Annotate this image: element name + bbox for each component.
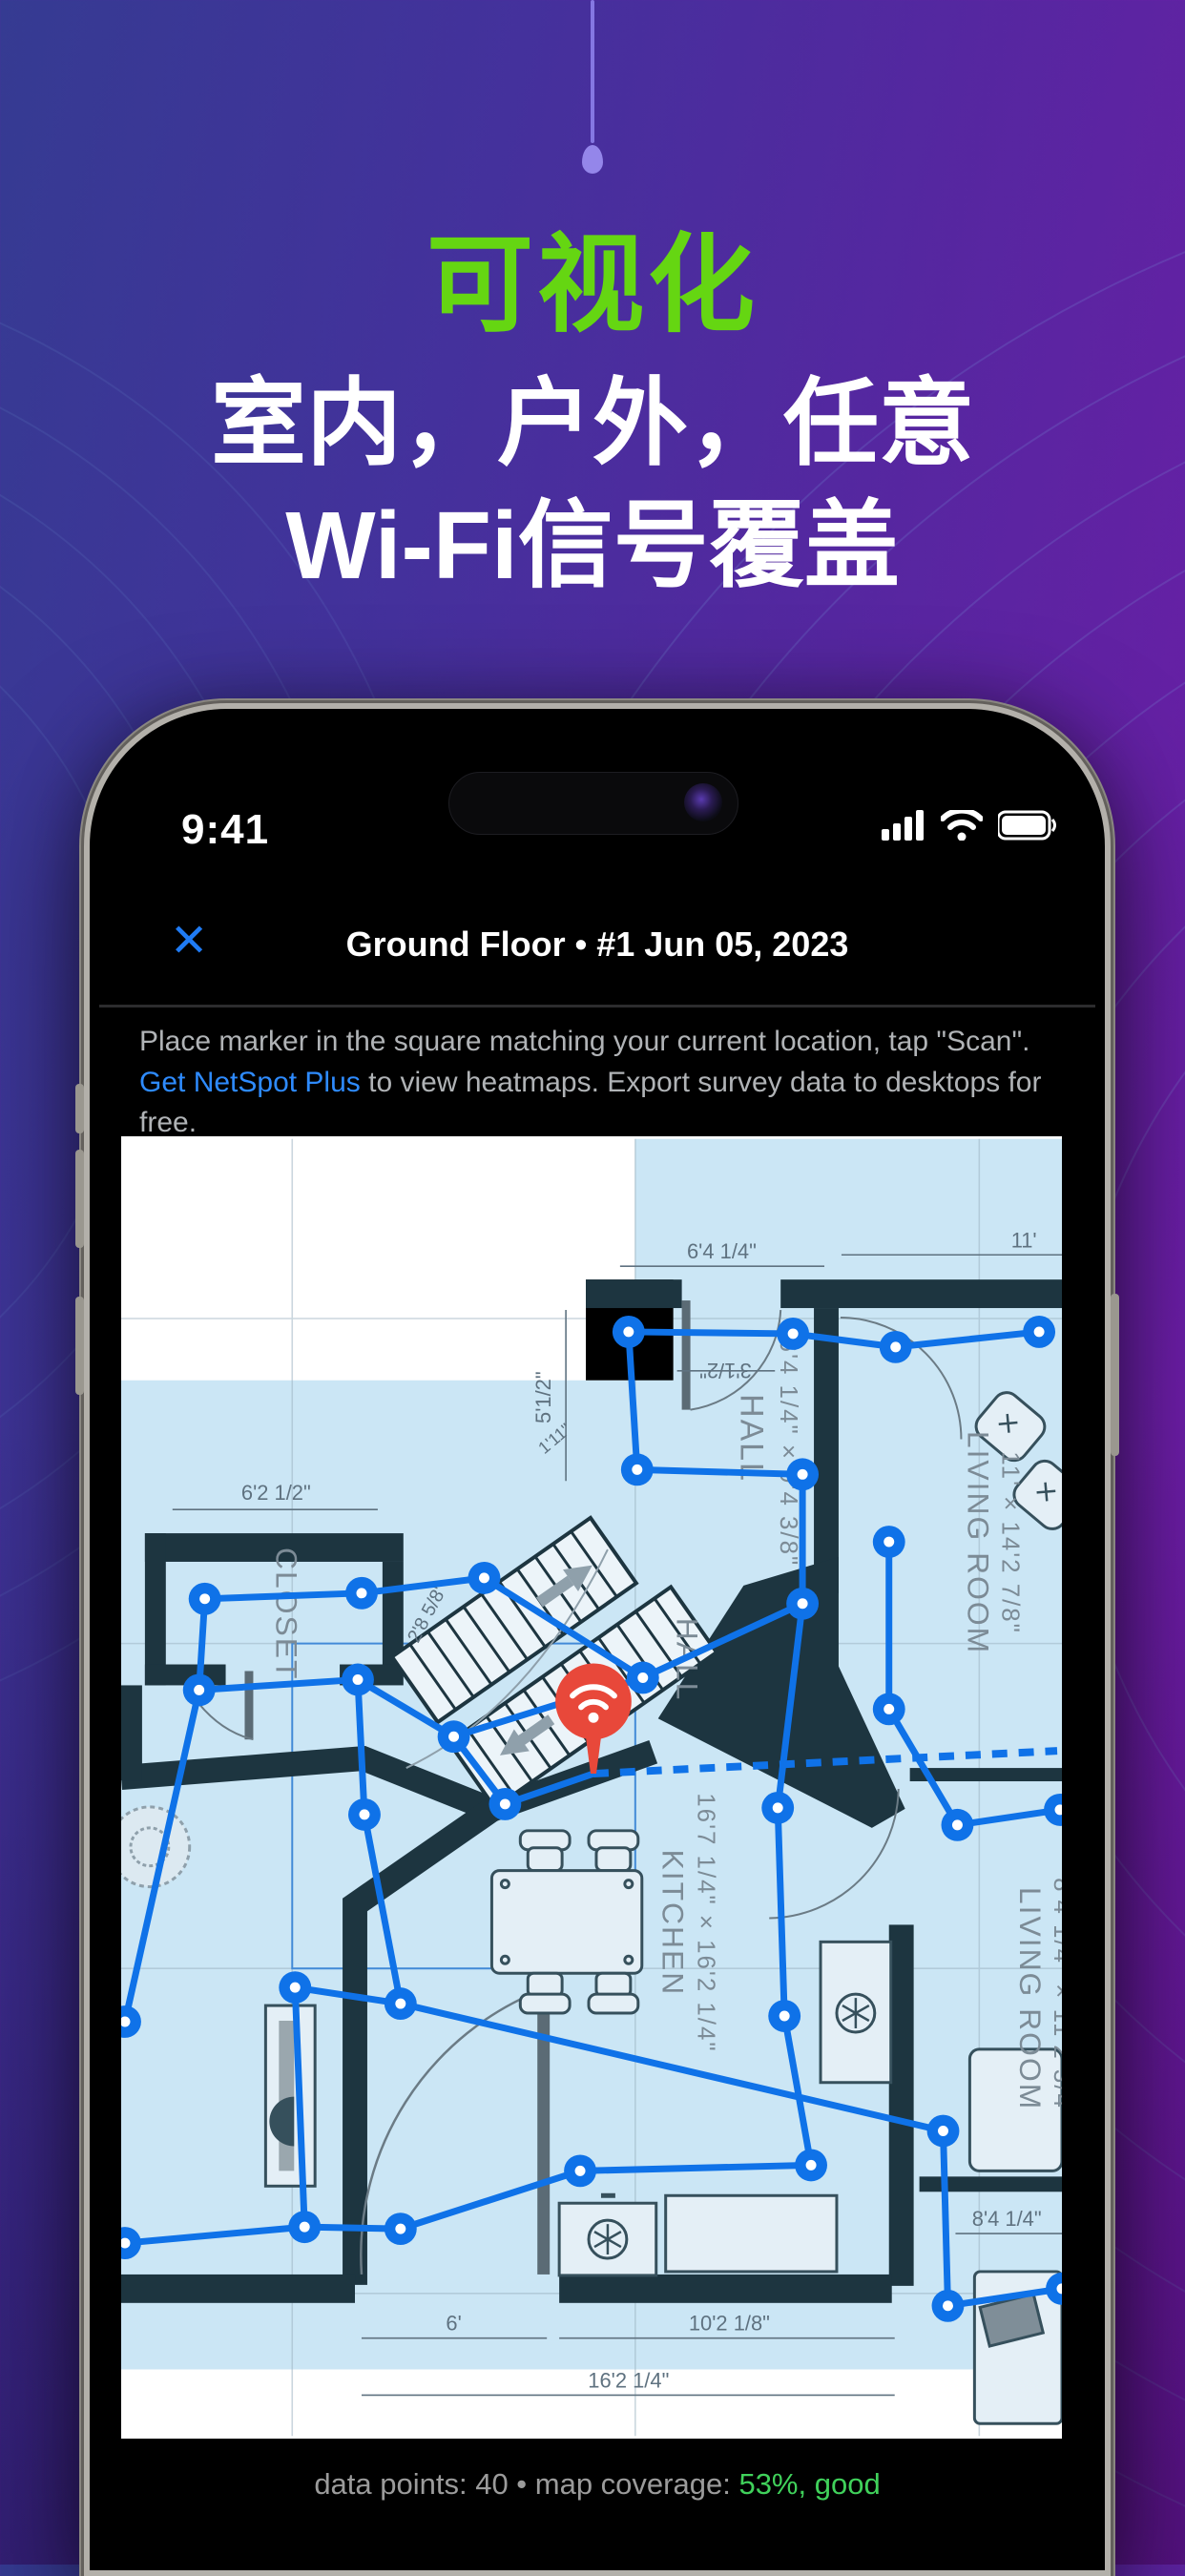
mute-switch: [75, 1084, 84, 1133]
phone-screen: 9:41: [99, 718, 1095, 2570]
dimension-label: 6': [446, 2312, 461, 2336]
cellular-signal-icon: [882, 810, 925, 841]
dimension-label: 11': [1011, 1228, 1037, 1252]
dimension-label: 16'2 1/4": [588, 2368, 669, 2392]
clock: 9:41: [181, 806, 269, 854]
room-label: 6'4 1/4" × 9'4 3/8": [775, 1339, 801, 1567]
chair: [596, 1973, 631, 1996]
chair: [589, 1994, 638, 2013]
hero-subtitle-line2: Wi-Fi信号覆盖: [0, 485, 1185, 607]
dimension-label: 6'4 1/4": [687, 1239, 757, 1263]
wifi-icon: [941, 810, 983, 841]
front-camera: [684, 783, 722, 821]
kitchen-table: [491, 1871, 641, 1974]
instruction-text: Place marker in the square matching your…: [139, 1022, 1063, 1144]
dynamic-island: [448, 772, 738, 835]
room-label: LIVING ROOM: [961, 1431, 995, 1654]
plumb-line-decoration: [591, 0, 594, 143]
chair: [528, 1973, 562, 1996]
sink-counter: [666, 2195, 837, 2272]
survey-status-bar: data points: 40 • map coverage: 53%, goo…: [99, 2439, 1095, 2570]
dimension-label: 8'4 1/4": [972, 2207, 1042, 2231]
room-label: 16'7 1/4" × 16'2 1/4": [693, 1793, 719, 2052]
hero-subtitle-line1: 室内，户外，任意: [0, 363, 1185, 485]
room-label: 8'4 1/4" × 11'2 3/4": [1049, 1878, 1062, 2120]
volume-down-button: [75, 1297, 84, 1395]
room-label: LIVING ROOM: [1013, 1887, 1048, 2110]
coverage-value: 53%, good: [738, 2467, 880, 2501]
divider: [99, 1005, 1095, 1008]
floor-plan-area[interactable]: 6'4 1/4"3'1/2"11'5'1/2"6'2 1/2"2'8 5/8"1…: [121, 1136, 1062, 2439]
room-label: CLOSET: [269, 1548, 303, 1680]
power-button: [1111, 1294, 1119, 1456]
chair: [528, 1848, 562, 1871]
dimension-label: 3'1/2": [699, 1359, 752, 1382]
room-label: KITCHEN: [656, 1850, 691, 1997]
hero-section: 可视化 室内，户外，任意 Wi-Fi信号覆盖: [0, 0, 1185, 607]
instruction-before: Place marker in the square matching your…: [139, 1026, 1029, 1057]
phone-mockup: 9:41: [84, 703, 1111, 2576]
dimension-label: 10'2 1/8": [689, 2312, 770, 2336]
volume-up-button: [75, 1150, 84, 1248]
dimension-label: 6'2 1/2": [241, 1481, 311, 1505]
navigation-bar: ✕ Ground Floor • #1 Jun 05, 2023: [99, 905, 1095, 1001]
room-label: 11' × 14'2 7/8": [996, 1451, 1023, 1634]
chair: [520, 1994, 570, 2013]
survey-title: Ground Floor • #1 Jun 05, 2023: [99, 924, 1095, 965]
droplet-icon: [582, 145, 603, 174]
dimension-label: 5'1/2": [531, 1371, 555, 1423]
battery-icon: [998, 810, 1057, 841]
status-bar: 9:41: [99, 718, 1095, 881]
chair: [596, 1848, 631, 1871]
data-points-text: data points: 40 • map coverage:: [314, 2467, 738, 2501]
get-netspot-plus-link[interactable]: Get NetSpot Plus: [139, 1067, 361, 1098]
hero-title: 可视化: [0, 198, 1185, 353]
